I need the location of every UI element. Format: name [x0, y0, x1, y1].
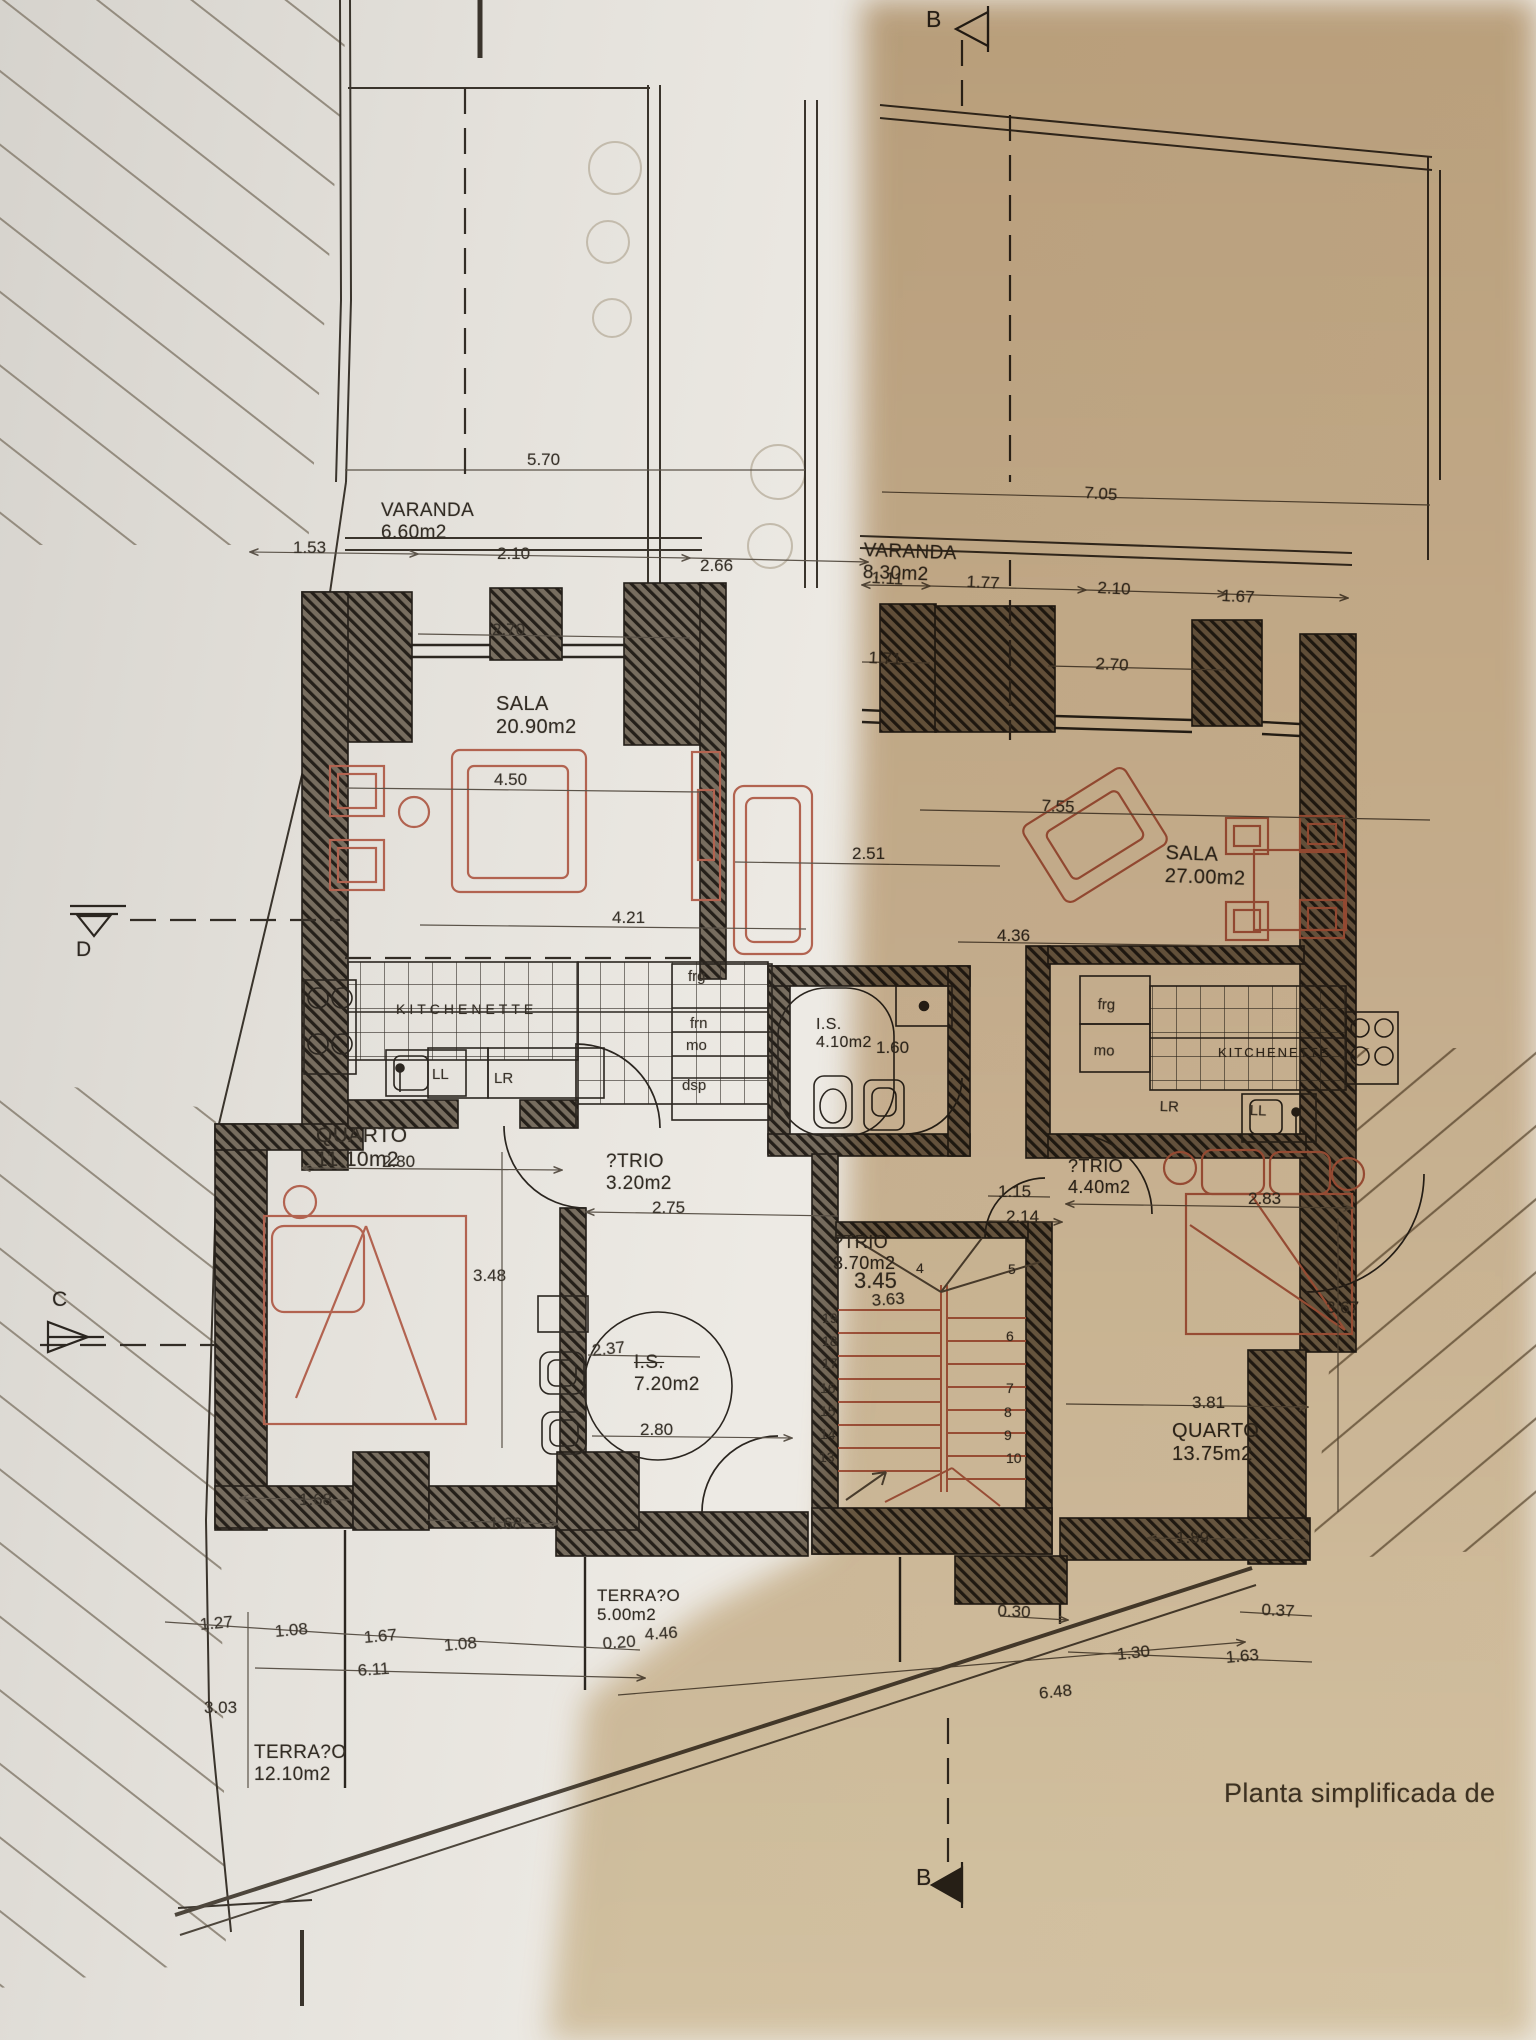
dimension-label: 2.83 — [1248, 1189, 1281, 1209]
room-label: SALA27.00m2 — [1164, 842, 1246, 890]
dimension-label: 4.36 — [997, 926, 1030, 946]
kitchen-fixture-label: LL — [1249, 1102, 1266, 1120]
dimension-label: 0.30 — [997, 1601, 1031, 1623]
dimension-label: 4.46 — [644, 1623, 678, 1645]
dimension-label: 1.77 — [966, 572, 1000, 594]
dimension-label: 0.37 — [1261, 1600, 1295, 1622]
dimension-label: 1.15 — [998, 1182, 1031, 1202]
drawing-caption: Planta simplificada de — [1224, 1778, 1495, 1809]
kitchen-fixture-label: LL — [432, 1066, 449, 1083]
section-mark-b-top: B — [926, 6, 941, 33]
dimension-label: 5.70 — [527, 450, 560, 470]
dimension-label: 1.89 — [1176, 1528, 1209, 1548]
kitchen-fixture-label: LR — [494, 1070, 513, 1087]
dimension-label: 1.63 — [1225, 1645, 1260, 1668]
kitchen-fixture-label: frg — [688, 968, 706, 985]
dimension-label: 1.08 — [274, 1619, 309, 1642]
dimension-label: 2.14 — [1006, 1207, 1039, 1227]
kitchen-fixture-label: mo — [686, 1037, 707, 1054]
stair-step-number: 7 — [1006, 1380, 1014, 1396]
dimension-label: 4.50 — [494, 770, 527, 790]
room-label: ?TRIO4.40m2 — [1068, 1156, 1130, 1197]
dimension-label: 1.11 — [871, 568, 904, 590]
stair-step-number: 15 — [820, 1403, 836, 1419]
section-mark-c: C — [52, 1288, 67, 1312]
dimension-label: 6.48 — [1038, 1681, 1073, 1704]
dimension-label: 1.68 — [489, 1514, 522, 1534]
dimension-label: 1.27 — [199, 1612, 234, 1635]
room-label: TERRA?O12.10m2 — [254, 1742, 347, 1785]
stair-step-number: 5 — [1008, 1261, 1016, 1277]
kitchen-fixture-label: frg — [1097, 996, 1115, 1014]
dimension-label: 1.60 — [876, 1038, 909, 1058]
dimension-label: 6.11 — [357, 1659, 390, 1681]
dimension-label: 2.66 — [700, 556, 733, 576]
dimension-label: 3.03 — [204, 1698, 237, 1718]
room-label: I.S.7.20m2 — [634, 1352, 700, 1395]
dimension-label: 7.05 — [1084, 483, 1118, 505]
room-label: KITCHENETTE — [396, 1002, 537, 1018]
stair-step-number: 19 — [822, 1310, 838, 1326]
stair-step-number: 10 — [1006, 1450, 1022, 1466]
stair-step-number: 8 — [1004, 1404, 1012, 1420]
stair-step-number: 18 — [822, 1333, 838, 1349]
kitchen-fixture-label: dsp — [682, 1077, 706, 1094]
dimension-label: 3.48 — [473, 1266, 506, 1286]
stair-step-number: 4 — [916, 1260, 924, 1276]
dimension-label: 1.67 — [1221, 586, 1255, 608]
room-label: SALA20.90m2 — [496, 693, 577, 739]
dimension-label: 1.08 — [443, 1633, 478, 1656]
dimension-label: 3.67 — [1326, 1298, 1359, 1318]
dimension-label: 1.67 — [363, 1625, 398, 1648]
dimension-label: 4.21 — [612, 908, 645, 928]
dimension-label: 2.70 — [1095, 654, 1129, 676]
stair-step-number: 6 — [1006, 1328, 1014, 1344]
kitchen-fixture-label: mo — [1093, 1042, 1114, 1060]
dimension-label: 3.63 — [871, 1289, 905, 1311]
section-mark-d: D — [76, 938, 91, 962]
room-label: ?TRIO3.20m2 — [606, 1151, 672, 1194]
dimension-label: 2.10 — [497, 544, 530, 564]
dimension-label: 1.53 — [293, 538, 326, 558]
room-label: KITCHENETTE — [1218, 1046, 1330, 1061]
stair-step-number: 9 — [1004, 1427, 1012, 1443]
stair-step-number: 17 — [822, 1355, 838, 1371]
floor-plan-photo: VARANDA6.60m2VARANDA8.30m2SALA20.90m2SAL… — [0, 0, 1536, 2040]
label-layer: VARANDA6.60m2VARANDA8.30m2SALA20.90m2SAL… — [0, 0, 1536, 2040]
dimension-label: 2.70 — [492, 620, 525, 640]
kitchen-fixture-label: frn — [690, 1015, 708, 1032]
room-label: ?TRIO3.70m2 — [833, 1232, 895, 1273]
room-label: VARANDA6.60m2 — [381, 500, 474, 543]
dimension-label: 2.51 — [852, 844, 885, 864]
room-label: I.S.4.10m2 — [816, 1016, 872, 1052]
stair-step-number: 16 — [820, 1380, 836, 1396]
dimension-label: 1.30 — [1116, 1642, 1151, 1665]
dimension-label: 0.20 — [602, 1632, 636, 1654]
dimension-label: 3.81 — [1192, 1393, 1225, 1413]
dimension-label: 1.71 — [868, 648, 902, 670]
dimension-label: 2.10 — [1097, 578, 1131, 600]
stair-step-number: 14 — [820, 1426, 836, 1442]
dimension-label: 7.55 — [1041, 796, 1075, 818]
dimension-label: 2.37 — [591, 1338, 626, 1361]
dimension-label: 2.80 — [382, 1152, 415, 1172]
kitchen-fixture-label: LR — [1159, 1098, 1179, 1116]
room-label: QUARTO13.75m2 — [1172, 1420, 1259, 1466]
dimension-label: 2.80 — [640, 1420, 673, 1440]
dimension-label: 1.68 — [299, 1490, 332, 1510]
dimension-label: 2.75 — [652, 1198, 685, 1218]
stair-step-number: 13 — [819, 1449, 835, 1465]
room-label: TERRA?O5.00m2 — [597, 1586, 680, 1625]
section-mark-b-bottom: B — [916, 1864, 931, 1891]
